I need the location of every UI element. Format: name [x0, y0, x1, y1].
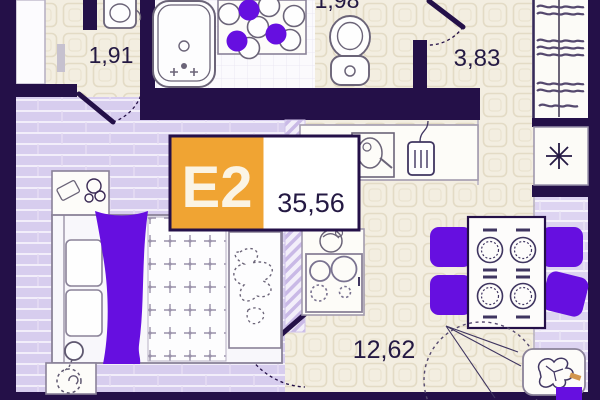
floor-plan[interactable]: 1,91 1,98 3,83 12,62 E2 35,56	[0, 0, 600, 400]
wall-under-vent	[532, 185, 600, 197]
wall-right	[588, 0, 600, 400]
unit-total-area: 35,56	[277, 188, 345, 218]
unit-code: E2	[182, 155, 253, 220]
floor-plan-drawing: 1,91 1,98 3,83 12,62 E2 35,56	[0, 0, 600, 400]
chair-icon	[430, 227, 472, 267]
quilt	[148, 217, 226, 361]
toilet-icon	[330, 16, 370, 85]
wall-left	[0, 0, 16, 400]
stove-icon	[306, 254, 362, 312]
decor-balls-icon	[218, 0, 306, 59]
plant-icon	[523, 349, 585, 400]
wc-area-label: 1,91	[89, 42, 134, 68]
vent-room	[534, 127, 588, 185]
bed-icon	[52, 211, 282, 364]
floor-shaft	[16, 0, 45, 84]
kitchen-living-area-label: 12,62	[353, 336, 416, 364]
dining-table-icon	[468, 217, 545, 328]
armchair-throw-icon	[229, 232, 281, 348]
nightstand-icon	[52, 171, 109, 216]
wall-stub-top-left	[83, 0, 97, 30]
unit-badge[interactable]: E2 35,56	[170, 136, 359, 230]
bed-corner-ball	[65, 342, 83, 360]
floor-lamp-icon	[46, 360, 96, 394]
wall-hall-stub	[413, 40, 427, 92]
kitchen-counter-side	[302, 229, 364, 315]
plant-pot	[556, 387, 582, 400]
hallway-area-label: 3,83	[454, 45, 501, 72]
bathtub-icon	[153, 1, 215, 87]
radiator-icon	[57, 44, 65, 72]
washbasin-icon	[104, 0, 141, 28]
wall-under-bathroom	[140, 88, 480, 120]
wall-under-wc	[16, 84, 77, 97]
wardrobe-icon	[532, 0, 588, 118]
bathroom-area-label: 1,98	[315, 0, 360, 13]
chair-icon	[541, 227, 583, 267]
chair-icon	[430, 275, 472, 315]
wall-under-wardrobe	[532, 118, 588, 127]
